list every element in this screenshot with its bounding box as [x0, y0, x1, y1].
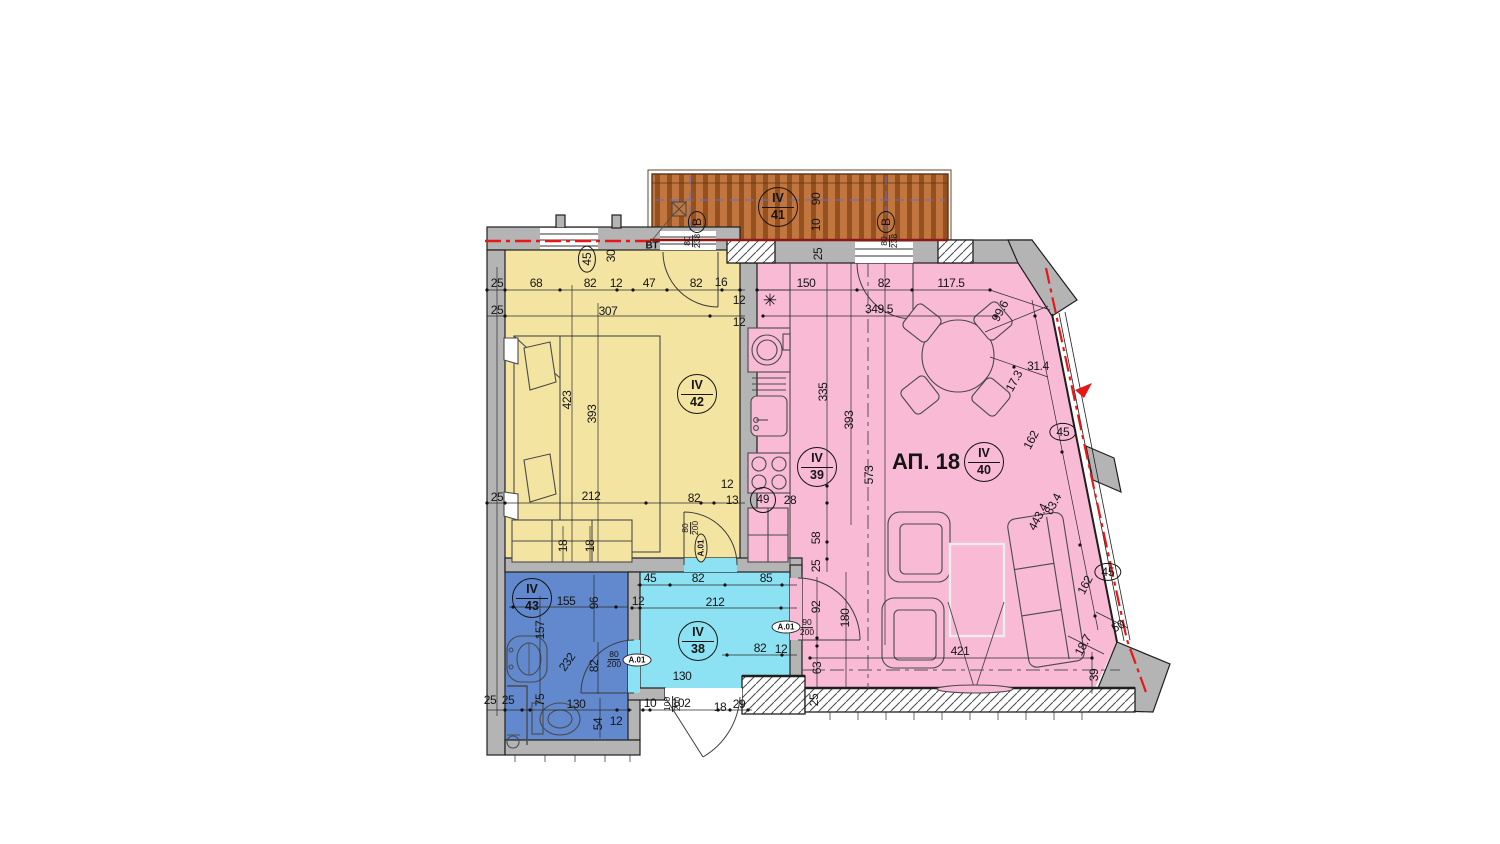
living-door-gap [790, 578, 802, 640]
kitchen-cabinets [748, 508, 788, 562]
jamb-stub [612, 215, 621, 228]
nightstand [504, 338, 518, 364]
armchair [882, 598, 944, 668]
terrace-door-living [855, 242, 913, 263]
bathroom-room [505, 572, 630, 740]
floorplan-canvas: 2568821247821625307121230423393252128213… [0, 0, 1500, 844]
left-outer-wall [487, 250, 505, 755]
coffee-table [950, 544, 1004, 636]
floorplan-drawing [0, 0, 1500, 844]
nightstand [504, 492, 518, 520]
bedroom-door-gap [684, 558, 737, 572]
slope-wall-block [1086, 446, 1121, 492]
bathroom-bottom-wall [505, 740, 640, 755]
bathroom-door-gap [628, 640, 640, 693]
cooktop [748, 453, 790, 493]
entry-door-swing [665, 697, 740, 757]
opening-direction-flag [1075, 383, 1092, 398]
washing-machine [748, 328, 790, 372]
armchair [888, 512, 950, 582]
entry-door-gap [665, 688, 742, 700]
jamb-stub [556, 215, 565, 228]
